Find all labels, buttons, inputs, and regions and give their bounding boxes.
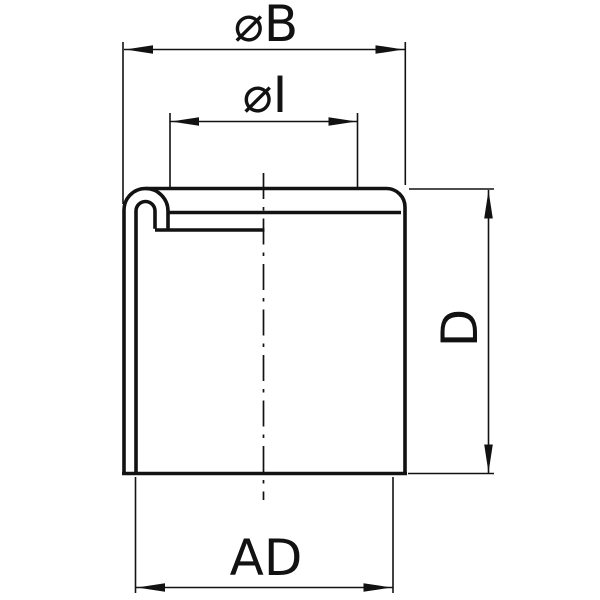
arrowhead-left <box>125 45 153 54</box>
label-outer-diameter: ⌀B <box>234 0 298 53</box>
label-inner-diameter: ⌀I <box>243 66 288 124</box>
dimension-height: D <box>408 189 494 474</box>
arrowhead-bottom <box>484 445 493 473</box>
arrowhead-top <box>484 191 493 219</box>
arrowhead-left <box>171 117 199 126</box>
technical-drawing: ⌀B ⌀I D AD <box>0 0 600 600</box>
label-fit-diameter: AD <box>230 529 303 587</box>
label-height: D <box>431 309 489 348</box>
arrowhead-right <box>364 583 392 592</box>
part-cross-section <box>122 189 407 474</box>
dimension-inner-diameter: ⌀I <box>170 66 358 188</box>
arrowhead-right <box>329 117 357 126</box>
inner-wall-line <box>136 202 155 474</box>
arrowhead-right <box>376 45 404 54</box>
arrowhead-left <box>137 583 165 592</box>
drawing-canvas: ⌀B ⌀I D AD <box>0 0 600 600</box>
